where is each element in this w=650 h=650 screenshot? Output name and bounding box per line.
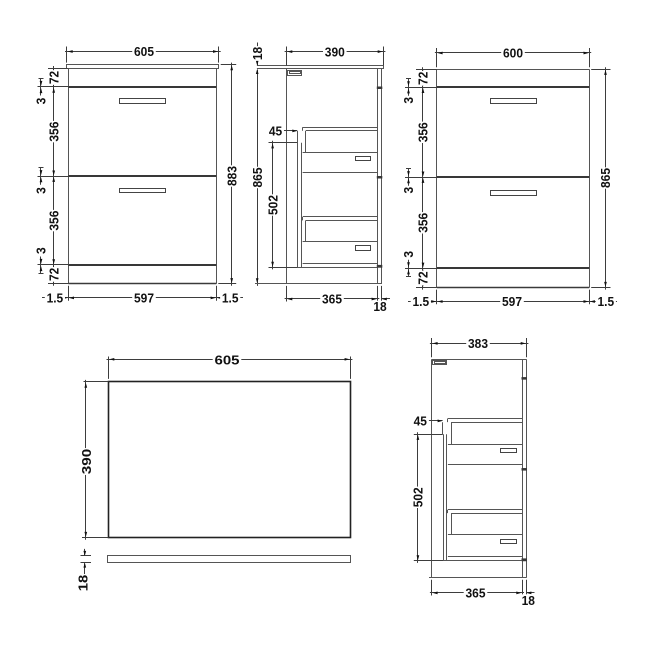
svg-text:883: 883 xyxy=(224,166,239,186)
svg-text:18: 18 xyxy=(76,575,91,592)
svg-text:45: 45 xyxy=(414,414,427,429)
svg-text:18: 18 xyxy=(250,47,265,60)
svg-text:390: 390 xyxy=(79,449,94,475)
svg-text:365: 365 xyxy=(322,292,342,307)
svg-text:356: 356 xyxy=(46,211,61,231)
svg-text:605: 605 xyxy=(215,353,240,368)
svg-text:597: 597 xyxy=(502,294,522,309)
svg-text:72: 72 xyxy=(46,71,61,84)
svg-text:605: 605 xyxy=(134,44,154,59)
svg-text:597: 597 xyxy=(134,291,154,306)
svg-text:3: 3 xyxy=(34,98,49,105)
svg-text:3: 3 xyxy=(34,187,49,194)
svg-text:72: 72 xyxy=(46,268,61,281)
svg-text:365: 365 xyxy=(466,586,486,601)
svg-text:72: 72 xyxy=(416,72,431,85)
svg-text:18: 18 xyxy=(522,593,535,608)
svg-text:356: 356 xyxy=(46,122,61,142)
svg-text:502: 502 xyxy=(411,487,426,507)
svg-text:356: 356 xyxy=(416,122,431,142)
svg-text:600: 600 xyxy=(503,46,523,61)
svg-text:3: 3 xyxy=(401,251,416,258)
svg-text:865: 865 xyxy=(250,168,265,188)
svg-text:3: 3 xyxy=(401,187,416,194)
svg-text:45: 45 xyxy=(269,124,282,139)
svg-text:18: 18 xyxy=(373,299,386,314)
svg-text:383: 383 xyxy=(468,336,488,351)
svg-text:72: 72 xyxy=(416,271,431,284)
svg-text:865: 865 xyxy=(598,168,613,188)
svg-text:356: 356 xyxy=(416,213,431,233)
svg-text:3: 3 xyxy=(34,247,49,254)
svg-text:3: 3 xyxy=(401,97,416,104)
svg-text:1.5: 1.5 xyxy=(598,294,615,309)
svg-text:390: 390 xyxy=(325,44,345,59)
svg-text:1.5: 1.5 xyxy=(47,291,64,306)
svg-text:1.5: 1.5 xyxy=(222,291,239,306)
svg-text:502: 502 xyxy=(265,195,280,215)
svg-text:1.5: 1.5 xyxy=(413,294,430,309)
